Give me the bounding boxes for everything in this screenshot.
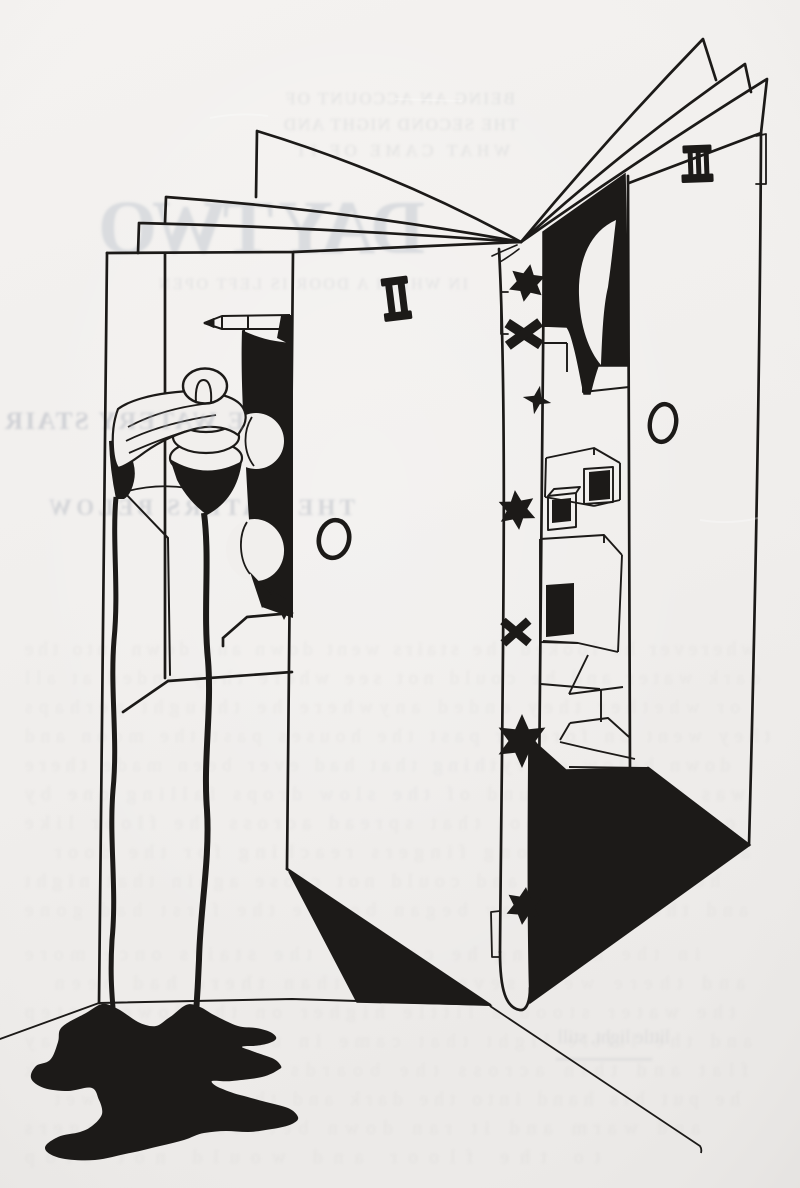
svg-text:they went on forever past the: they went on forever past the houses pas… xyxy=(25,726,771,747)
svg-text:or whether they ended anywhere: or whether they ended anywhere he though… xyxy=(25,697,740,718)
svg-text:little light, still: little light, still xyxy=(558,1027,670,1048)
svg-text:THE SECOND NIGHT AND: THE SECOND NIGHT AND xyxy=(283,115,518,134)
svg-text:IN WHICH A DOOR IS LEFT OPEN: IN WHICH A DOOR IS LEFT OPEN xyxy=(158,276,468,293)
